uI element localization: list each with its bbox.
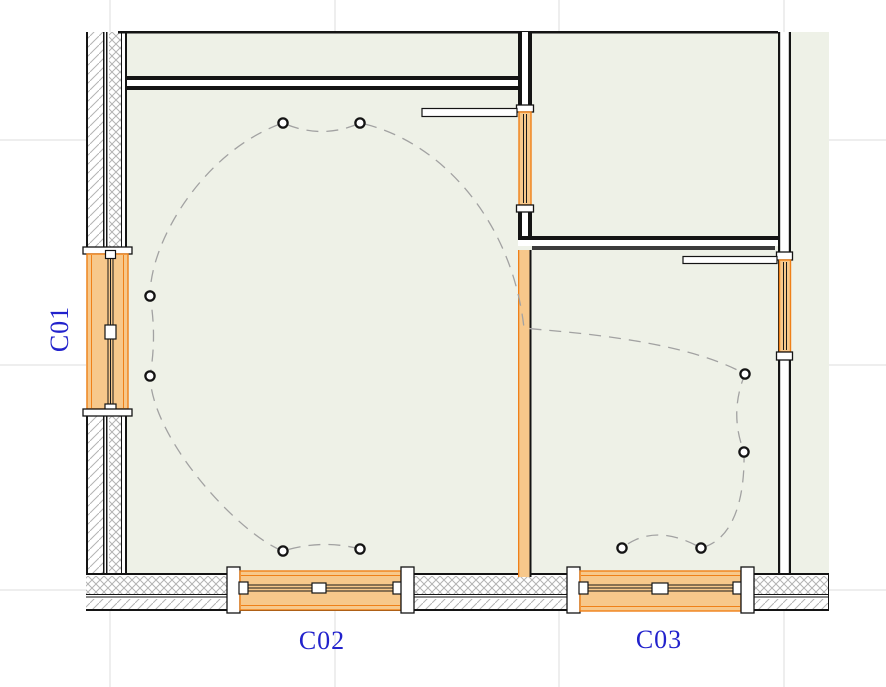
light-symbol[interactable] <box>145 291 154 300</box>
window-label-c01[interactable]: C01 <box>45 306 74 352</box>
window-right-wall[interactable] <box>777 252 793 360</box>
window-c01[interactable] <box>83 247 132 416</box>
light-symbol[interactable] <box>278 118 287 127</box>
beam-outline-right[interactable] <box>683 257 777 264</box>
cad-canvas[interactable]: C01 C02 C03 <box>0 0 886 687</box>
floor-plan-drawing: C01 C02 C03 <box>0 0 886 687</box>
floor-area <box>86 32 829 611</box>
wall-left-upper[interactable] <box>86 32 127 248</box>
light-symbol[interactable] <box>696 543 705 552</box>
light-symbol[interactable] <box>355 544 364 553</box>
window-partition[interactable] <box>517 105 534 212</box>
window-label-c03[interactable]: C03 <box>636 625 682 654</box>
light-symbol[interactable] <box>740 369 749 378</box>
window-label-c02[interactable]: C02 <box>299 626 345 655</box>
light-symbol[interactable] <box>355 118 364 127</box>
wall-room2-bottom[interactable] <box>518 236 780 250</box>
wall-top-edge[interactable] <box>118 31 778 34</box>
window-c02[interactable] <box>227 567 414 613</box>
light-symbol[interactable] <box>145 371 154 380</box>
wall-interior-orange[interactable] <box>518 250 532 577</box>
beam-outline-top[interactable] <box>422 109 517 117</box>
wall-partition-top[interactable] <box>127 76 518 90</box>
light-symbol[interactable] <box>617 543 626 552</box>
window-c03[interactable] <box>567 567 754 613</box>
light-symbol[interactable] <box>278 546 287 555</box>
light-symbol[interactable] <box>739 447 748 456</box>
